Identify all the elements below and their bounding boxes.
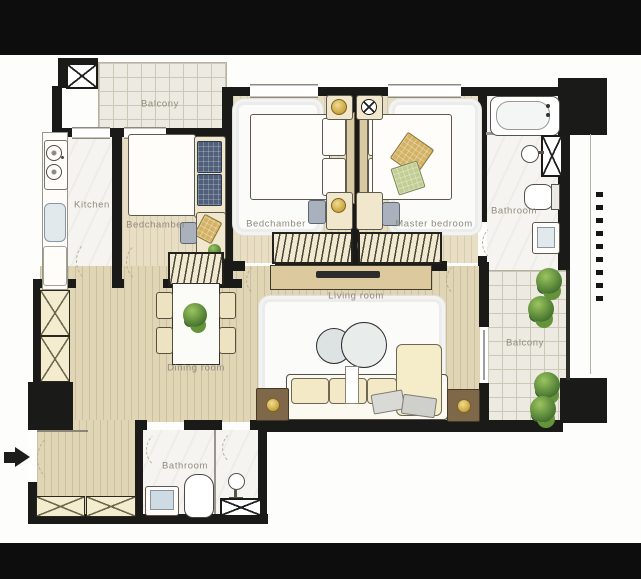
room-label-balcony-right: Balcony xyxy=(506,338,544,349)
wall xyxy=(558,78,607,135)
burner-icon xyxy=(46,164,62,180)
door-arc-icon xyxy=(37,431,91,485)
shower-pedestal-icon xyxy=(228,473,245,490)
room-label-balcony-top: Balcony xyxy=(141,99,179,110)
toilet-icon xyxy=(184,474,214,518)
ceiling-fan-icon xyxy=(361,99,377,115)
chair-icon xyxy=(156,292,173,319)
headboard xyxy=(359,112,368,204)
sink-basin xyxy=(150,490,174,510)
wall xyxy=(135,420,143,516)
plant-icon xyxy=(536,268,562,294)
bottom-letterbox-bar xyxy=(0,543,641,579)
sliding-door-icon xyxy=(483,330,485,380)
kitchen-cabinet xyxy=(43,246,67,286)
wall xyxy=(184,420,222,430)
chair-icon xyxy=(219,292,236,319)
door-arc-icon xyxy=(222,430,258,466)
wall xyxy=(479,262,489,327)
sofa-cushion xyxy=(291,378,329,404)
room-label-living-room: Living room xyxy=(328,291,384,302)
toilet-tank xyxy=(551,184,560,210)
wall xyxy=(28,382,73,432)
lamp-icon xyxy=(331,99,347,115)
chair-icon xyxy=(308,200,326,224)
closet-x-icon xyxy=(66,63,98,89)
wall xyxy=(560,378,607,423)
pillow-icon xyxy=(197,141,222,173)
entry-arrow-icon xyxy=(15,447,30,467)
bed-icon xyxy=(250,114,330,200)
end-table xyxy=(345,366,359,404)
pillow-icon xyxy=(322,158,346,196)
tub-faucet xyxy=(546,104,550,108)
floor-plan: Balcony Kitchen Bedchamber Bedchamber Ma… xyxy=(0,0,641,579)
room-label-bedchamber-center: Bedchamber xyxy=(246,219,306,230)
top-letterbox-bar xyxy=(0,0,641,55)
room-label-master-bedroom: Master bedroom xyxy=(395,219,473,230)
window-icon xyxy=(72,127,110,139)
pillow-icon xyxy=(197,174,222,206)
lamp-icon xyxy=(457,399,471,413)
basin-tap xyxy=(538,151,544,154)
dashed-boundary xyxy=(596,192,603,308)
wall xyxy=(461,87,562,96)
room-label-bedchamber-left: Bedchamber xyxy=(126,220,186,231)
kitchen-sink-icon xyxy=(44,203,66,242)
wall xyxy=(232,87,250,96)
sink-basin xyxy=(537,227,555,248)
wall xyxy=(33,284,40,384)
bathtub-basin xyxy=(496,101,550,130)
wardrobe-icon xyxy=(358,232,442,264)
wardrobe-icon xyxy=(168,252,224,286)
tub-faucet xyxy=(546,113,550,117)
plant-icon xyxy=(528,296,554,322)
window-icon xyxy=(250,84,318,98)
closet-x-icon xyxy=(36,496,85,517)
chair-icon xyxy=(156,327,173,354)
wall xyxy=(112,279,124,288)
stove-knob xyxy=(61,156,64,159)
wall xyxy=(478,96,487,222)
closet-x-icon xyxy=(220,498,262,517)
room-label-kitchen: Kitchen xyxy=(74,200,110,211)
ledge-line xyxy=(590,134,591,374)
balcony-top-floor xyxy=(98,62,227,132)
wall xyxy=(233,261,245,271)
burner-icon xyxy=(46,145,62,161)
room-label-bathroom-bottom: Bathroom xyxy=(162,461,208,472)
closet-x-icon xyxy=(40,336,70,382)
wall xyxy=(265,420,563,432)
plant-icon xyxy=(530,396,556,422)
bathroom-partition xyxy=(214,430,216,514)
coffee-table-icon xyxy=(341,322,387,368)
washbasin-icon xyxy=(521,145,539,163)
wardrobe-icon xyxy=(272,232,353,264)
wall xyxy=(135,420,147,430)
room-label-dining-room: Dining room xyxy=(167,363,225,374)
door-arc-icon xyxy=(446,262,482,298)
room-label-bathroom-top: Bathroom xyxy=(491,206,537,217)
window-icon xyxy=(388,84,461,98)
plant-icon xyxy=(534,372,560,398)
door-arc-icon xyxy=(126,240,170,284)
chair-icon xyxy=(219,327,236,354)
headboard xyxy=(346,112,355,204)
lamp-icon xyxy=(266,398,280,412)
plant-icon xyxy=(183,303,207,327)
entry-arrow-icon xyxy=(4,452,15,463)
closet-x-icon xyxy=(40,290,70,336)
wall xyxy=(479,383,489,422)
door-arc-icon xyxy=(482,224,520,262)
closet-x-icon xyxy=(86,496,136,517)
lamp-icon xyxy=(331,198,346,213)
shaft-x-icon xyxy=(541,135,563,177)
desk-icon xyxy=(356,192,383,230)
bed-icon xyxy=(128,134,196,216)
door-arc-icon xyxy=(76,238,118,284)
tv-icon xyxy=(316,271,380,278)
pillow-icon xyxy=(322,118,346,156)
balcony-edge xyxy=(566,270,570,380)
